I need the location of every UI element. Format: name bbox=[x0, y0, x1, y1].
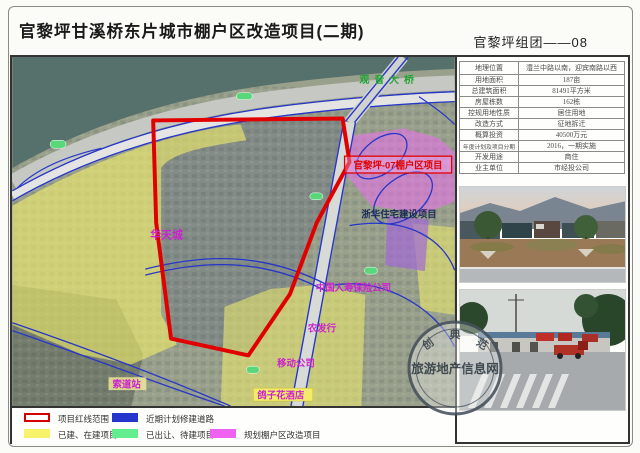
info-value: 40500万元 bbox=[519, 130, 625, 141]
legend-swatch-redline bbox=[24, 413, 50, 422]
label-renshou: 中国人寿保险公司 bbox=[316, 282, 391, 293]
road-label-marker bbox=[236, 93, 252, 100]
legend-label: 项目红线范围 bbox=[58, 413, 109, 425]
table-row: 用地面积187亩 bbox=[460, 75, 625, 86]
info-value: 商住 bbox=[519, 152, 625, 163]
label-guanyin-bridge: 观音大桥 bbox=[359, 73, 418, 86]
table-row: 年度计划及项目分期2016，一期实施 bbox=[460, 141, 625, 152]
table-row: 概算投资40500万元 bbox=[460, 130, 625, 141]
info-value: 81491平方米 bbox=[519, 86, 625, 97]
overlay-built-bank bbox=[221, 285, 366, 406]
satellite-map: 观音大桥 官黎坪-07棚户区项目 浙华住宅建设项目 华天城 中国人寿保险公司 农… bbox=[12, 57, 455, 406]
legend-swatch-yellow bbox=[24, 429, 50, 438]
info-label: 总建筑面积 bbox=[460, 86, 519, 97]
info-value: 162栋 bbox=[519, 97, 625, 108]
info-label: 概算投资 bbox=[460, 130, 519, 141]
site-photo-1 bbox=[459, 186, 626, 283]
info-label: 房屋栋数 bbox=[460, 97, 519, 108]
watermark-stamp: 创 典 范 旅游地产信息网 bbox=[405, 318, 505, 418]
info-value: 市经投公司 bbox=[519, 163, 625, 174]
road-label-marker bbox=[50, 140, 66, 148]
info-value: 187亩 bbox=[519, 75, 625, 86]
table-row: 业主单位市经投公司 bbox=[460, 163, 625, 174]
info-value: 澧兰中路以南，迎宾南路以西 bbox=[519, 62, 625, 75]
info-label: 业主单位 bbox=[460, 163, 519, 174]
legend-label: 近期计划修建道路 bbox=[146, 413, 214, 425]
info-label: 控规用地性质 bbox=[460, 108, 519, 119]
label-huatian: 华天城 bbox=[150, 227, 183, 241]
label-project07: 官黎坪-07棚户区项目 bbox=[354, 160, 443, 171]
table-row: 地理位置澧兰中路以南，迎宾南路以西 bbox=[460, 62, 625, 75]
table-row: 总建筑面积81491平方米 bbox=[460, 86, 625, 97]
info-label: 用地面积 bbox=[460, 75, 519, 86]
info-value: 征地拆迁 bbox=[519, 119, 625, 130]
label-zhehua: 浙华住宅建设项目 bbox=[361, 209, 436, 220]
stamp-arc-char: 典 bbox=[450, 327, 461, 341]
info-label: 年度计划及项目分期 bbox=[460, 141, 519, 152]
info-label: 开发用途 bbox=[460, 152, 519, 163]
watermark-stamp-art: 创 典 范 旅游地产信息网 bbox=[405, 318, 505, 418]
site-photo-1-art bbox=[460, 187, 626, 282]
legend-label: 规划棚户区改造项目 bbox=[244, 429, 321, 441]
legend-item-redline: 项目红线范围 bbox=[24, 413, 109, 423]
stamp-center-text: 旅游地产信息网 bbox=[410, 361, 499, 376]
label-yidong: 移动公司 bbox=[277, 357, 315, 368]
label-nongfahang: 农发行 bbox=[307, 323, 337, 334]
info-value: 居住用地 bbox=[519, 108, 625, 119]
plan-sheet-code: 官黎坪组团——08 bbox=[474, 32, 588, 51]
plan-document-page: 官黎坪甘溪桥东片城市棚户区改造项目(二期) 官黎坪组团——08 bbox=[0, 0, 640, 453]
legend-swatch-magenta bbox=[210, 429, 236, 438]
info-value: 2016，一期实施 bbox=[519, 141, 625, 152]
label-gezihua: 鸽子花酒店 bbox=[257, 390, 305, 401]
road-label-marker bbox=[246, 366, 259, 373]
info-label: 地理位置 bbox=[460, 62, 519, 75]
map-svg: 观音大桥 官黎坪-07棚户区项目 浙华住宅建设项目 华天城 中国人寿保险公司 农… bbox=[12, 57, 455, 406]
legend-swatch-blue bbox=[112, 413, 138, 422]
main-content-box: 观音大桥 官黎坪-07棚户区项目 浙华住宅建设项目 华天城 中国人寿保险公司 农… bbox=[10, 55, 630, 444]
road-label-marker bbox=[364, 267, 377, 274]
table-row: 改造方式征地拆迁 bbox=[460, 119, 625, 130]
road-label-marker bbox=[310, 193, 323, 200]
table-row: 房屋栋数162栋 bbox=[460, 97, 625, 108]
legend-swatch-green bbox=[112, 429, 138, 438]
label-suodao: 索道站 bbox=[113, 379, 142, 390]
table-row: 开发用途商住 bbox=[460, 152, 625, 163]
project-info-table: 地理位置澧兰中路以南，迎宾南路以西 用地面积187亩 总建筑面积81491平方米… bbox=[459, 61, 625, 174]
info-label: 改造方式 bbox=[460, 119, 519, 130]
legend-label: 已建、在建项目 bbox=[58, 429, 118, 441]
page-title: 官黎坪甘溪桥东片城市棚户区改造项目(二期) bbox=[19, 18, 365, 42]
table-row: 控规用地性质居住用地 bbox=[460, 108, 625, 119]
legend-label: 已出让、待建项目 bbox=[146, 429, 214, 441]
map-legend: 项目红线范围 近期计划修建道路 已建、在建项目 已出让、待建项目 规划棚户区改造… bbox=[12, 406, 455, 444]
